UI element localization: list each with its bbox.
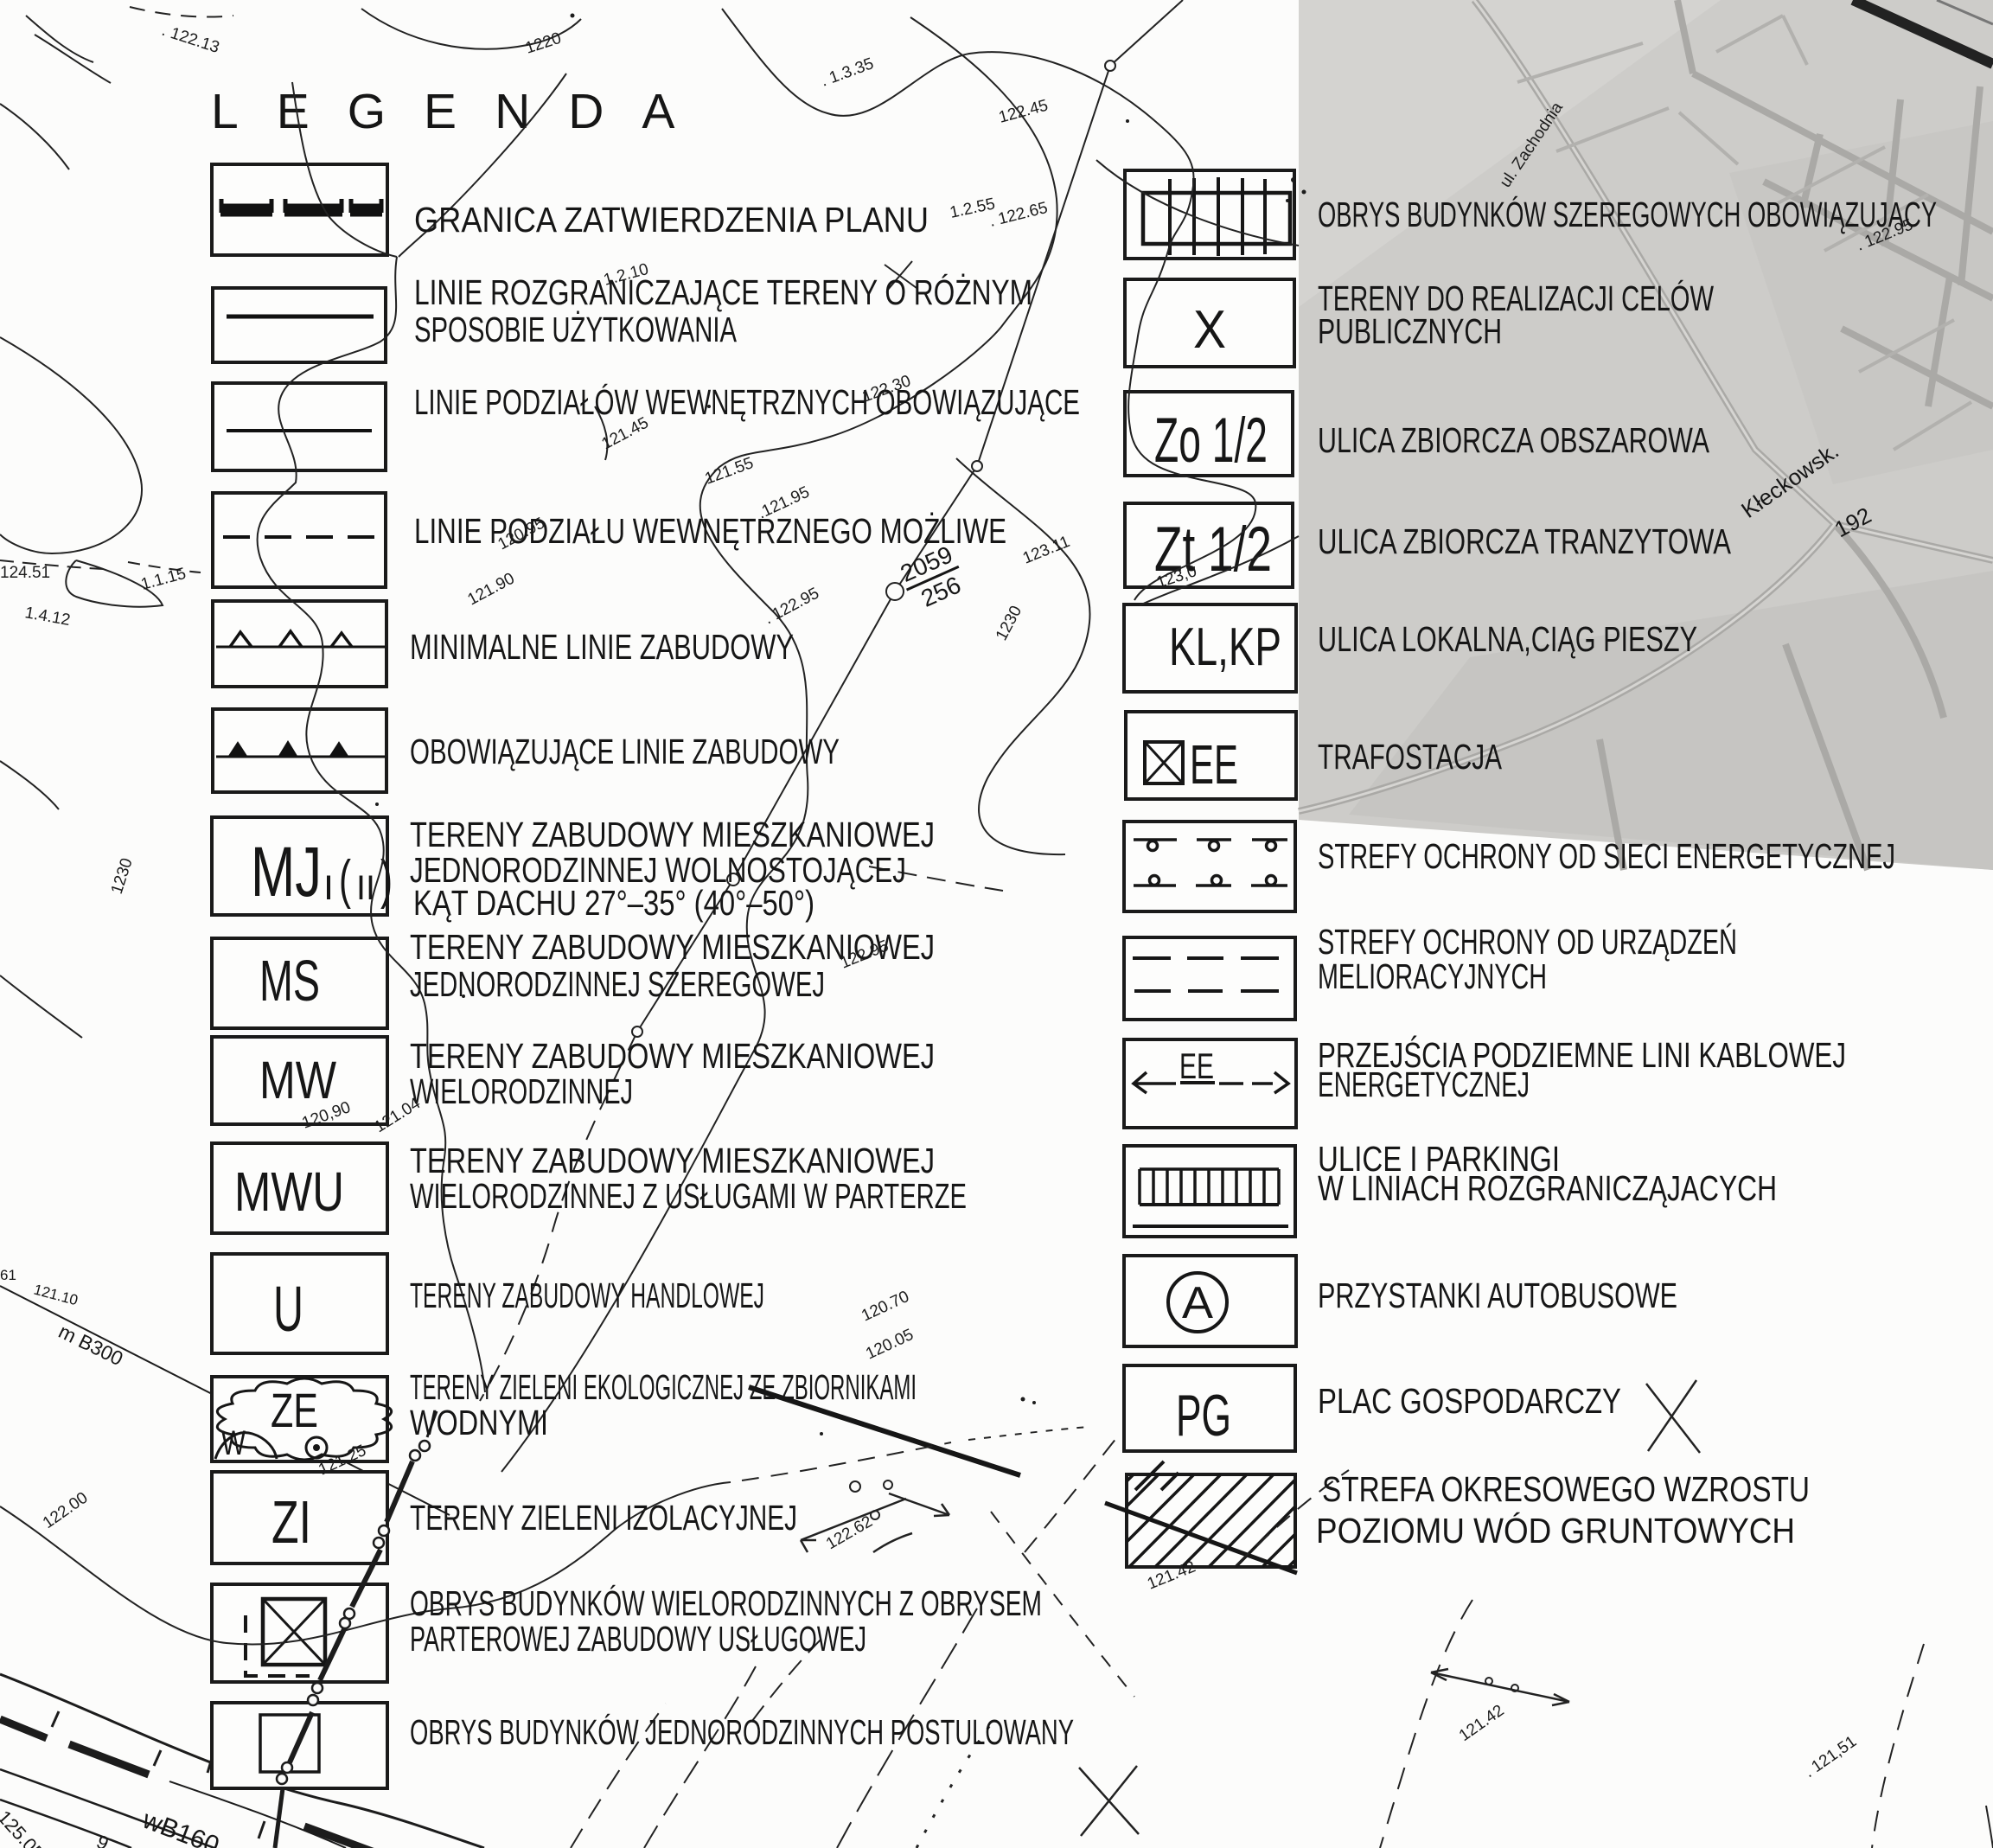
svg-text:MJ: MJ: [251, 833, 322, 911]
svg-text:U: U: [273, 1273, 303, 1345]
svg-text:ULICA LOKALNA,CIĄG PIESZY: ULICA LOKALNA,CIĄG PIESZY: [1318, 619, 1697, 659]
svg-text:MWU: MWU: [234, 1161, 344, 1223]
svg-text:KL,KP: KL,KP: [1169, 617, 1281, 677]
svg-text:TERENY ZIELENI EKOLOGICZNEJ ZE: TERENY ZIELENI EKOLOGICZNEJ ZE ZBIORNIKA…: [410, 1367, 917, 1407]
svg-text:JEDNORODZINNEJ SZEREGOWEJ: JEDNORODZINNEJ SZEREGOWEJ: [410, 964, 825, 1004]
svg-text:PARTEROWEJ ZABUDOWY USŁUGOWEJ: PARTEROWEJ ZABUDOWY USŁUGOWEJ: [410, 1619, 866, 1659]
svg-text:ZI: ZI: [271, 1488, 311, 1556]
svg-text:PLAC GOSPODARCZY: PLAC GOSPODARCZY: [1318, 1381, 1621, 1421]
svg-text:Zo 1/2: Zo 1/2: [1154, 406, 1268, 476]
svg-text:WODNYMI: WODNYMI: [410, 1403, 548, 1442]
svg-text:PRZYSTANKI AUTOBUSOWE: PRZYSTANKI AUTOBUSOWE: [1318, 1276, 1677, 1315]
svg-text:W: W: [221, 1424, 246, 1462]
svg-text:MS: MS: [259, 949, 320, 1014]
svg-text:OBRYS BUDYNKÓW JEDNORODZINNYCH: OBRYS BUDYNKÓW JEDNORODZINNYCH POSTULOWA…: [410, 1712, 1074, 1752]
svg-text:LEGENDA: LEGENDA: [211, 84, 712, 139]
svg-text:MW: MW: [259, 1051, 336, 1109]
svg-text:LINIE PODZIAŁÓW WEWNĘTRZNYCH O: LINIE PODZIAŁÓW WEWNĘTRZNYCH OBOWIĄZUJĄC…: [414, 382, 1080, 422]
svg-text:OBRYS BUDYNKÓW SZEREGOWYCH OBO: OBRYS BUDYNKÓW SZEREGOWYCH OBOWIĄZUJACY: [1318, 195, 1937, 234]
svg-text:PG: PG: [1176, 1383, 1231, 1448]
svg-text:61: 61: [0, 1267, 16, 1283]
svg-text:ULICA ZBIORCZA OBSZAROWA: ULICA ZBIORCZA OBSZAROWA: [1318, 420, 1709, 460]
svg-text:ULICA ZBIORCZA TRANZYTOWA: ULICA ZBIORCZA TRANZYTOWA: [1318, 521, 1731, 561]
svg-text:MELIORACYJNYCH: MELIORACYJNYCH: [1318, 956, 1547, 996]
svg-text:STREFA OKRESOWEGO WZROSTU: STREFA OKRESOWEGO WZROSTU: [1322, 1469, 1810, 1509]
svg-text:I: I: [323, 869, 334, 907]
svg-text:X: X: [1193, 300, 1226, 360]
svg-text:TERENY ZABUDOWY HANDLOWEJ: TERENY ZABUDOWY HANDLOWEJ: [410, 1276, 764, 1315]
svg-text:POZIOMU WÓD GRUNTOWYCH: POZIOMU WÓD GRUNTOWYCH: [1316, 1511, 1795, 1551]
svg-text:TERENY ZIELENI IZOLACYJNEJ: TERENY ZIELENI IZOLACYJNEJ: [410, 1498, 797, 1538]
svg-text:SPOSOBIE UŻYTKOWANIA: SPOSOBIE UŻYTKOWANIA: [414, 310, 737, 349]
svg-text:WIELORODZINNEJ: WIELORODZINNEJ: [410, 1071, 633, 1111]
svg-text:124.51: 124.51: [0, 564, 50, 582]
svg-text:ENERGETYCZNEJ: ENERGETYCZNEJ: [1318, 1065, 1530, 1104]
svg-text:W LINIACH ROZGRANICZĄJACYCH: W LINIACH ROZGRANICZĄJACYCH: [1318, 1168, 1777, 1208]
svg-text:WIELORODZINNEJ Z USŁUGAMI W PA: WIELORODZINNEJ Z USŁUGAMI W PARTERZE: [410, 1176, 967, 1216]
svg-text:MINIMALNE LINIE ZABUDOWY: MINIMALNE LINIE ZABUDOWY: [410, 627, 794, 667]
svg-text:EE: EE: [1190, 733, 1238, 796]
svg-text:A: A: [1182, 1278, 1213, 1328]
svg-text:TERENY ZABUDOWY MIESZKANIOWEJ: TERENY ZABUDOWY MIESZKANIOWEJ: [410, 1141, 935, 1180]
svg-text:KĄT DACHU 27°–35° (40°–50°): KĄT DACHU 27°–35° (40°–50°): [413, 883, 814, 923]
svg-text:TERENY ZABUDOWY MIESZKANIOWEJ: TERENY ZABUDOWY MIESZKANIOWEJ: [410, 815, 935, 854]
svg-text:STREFY OCHRONY OD SIECI ENERGE: STREFY OCHRONY OD SIECI ENERGETYCZNEJ: [1318, 836, 1895, 876]
svg-text:(: (: [339, 850, 351, 910]
svg-text:GRANICA ZATWIERDZENIA PLANU: GRANICA ZATWIERDZENIA PLANU: [414, 200, 929, 240]
svg-text:TERENY ZABUDOWY MIESZKANIOWEJ: TERENY ZABUDOWY MIESZKANIOWEJ: [410, 1036, 935, 1076]
svg-text:PUBLICZNYCH: PUBLICZNYCH: [1318, 311, 1502, 351]
svg-text:EE: EE: [1179, 1045, 1214, 1086]
svg-text:TRAFOSTACJA: TRAFOSTACJA: [1318, 737, 1502, 777]
svg-text:LINIE ROZGRANICZAJĄCE TERENY O: LINIE ROZGRANICZAJĄCE TERENY O RÓŻNYM: [414, 272, 1032, 312]
svg-text:OBOWIĄZUJĄCE LINIE ZABUDOWY: OBOWIĄZUJĄCE LINIE ZABUDOWY: [410, 732, 840, 771]
svg-text:OBRYS BUDYNKÓW WIELORODZINNYCH: OBRYS BUDYNKÓW WIELORODZINNYCH Z OBRYSEM: [410, 1583, 1042, 1623]
svg-text:ZE: ZE: [271, 1383, 318, 1437]
